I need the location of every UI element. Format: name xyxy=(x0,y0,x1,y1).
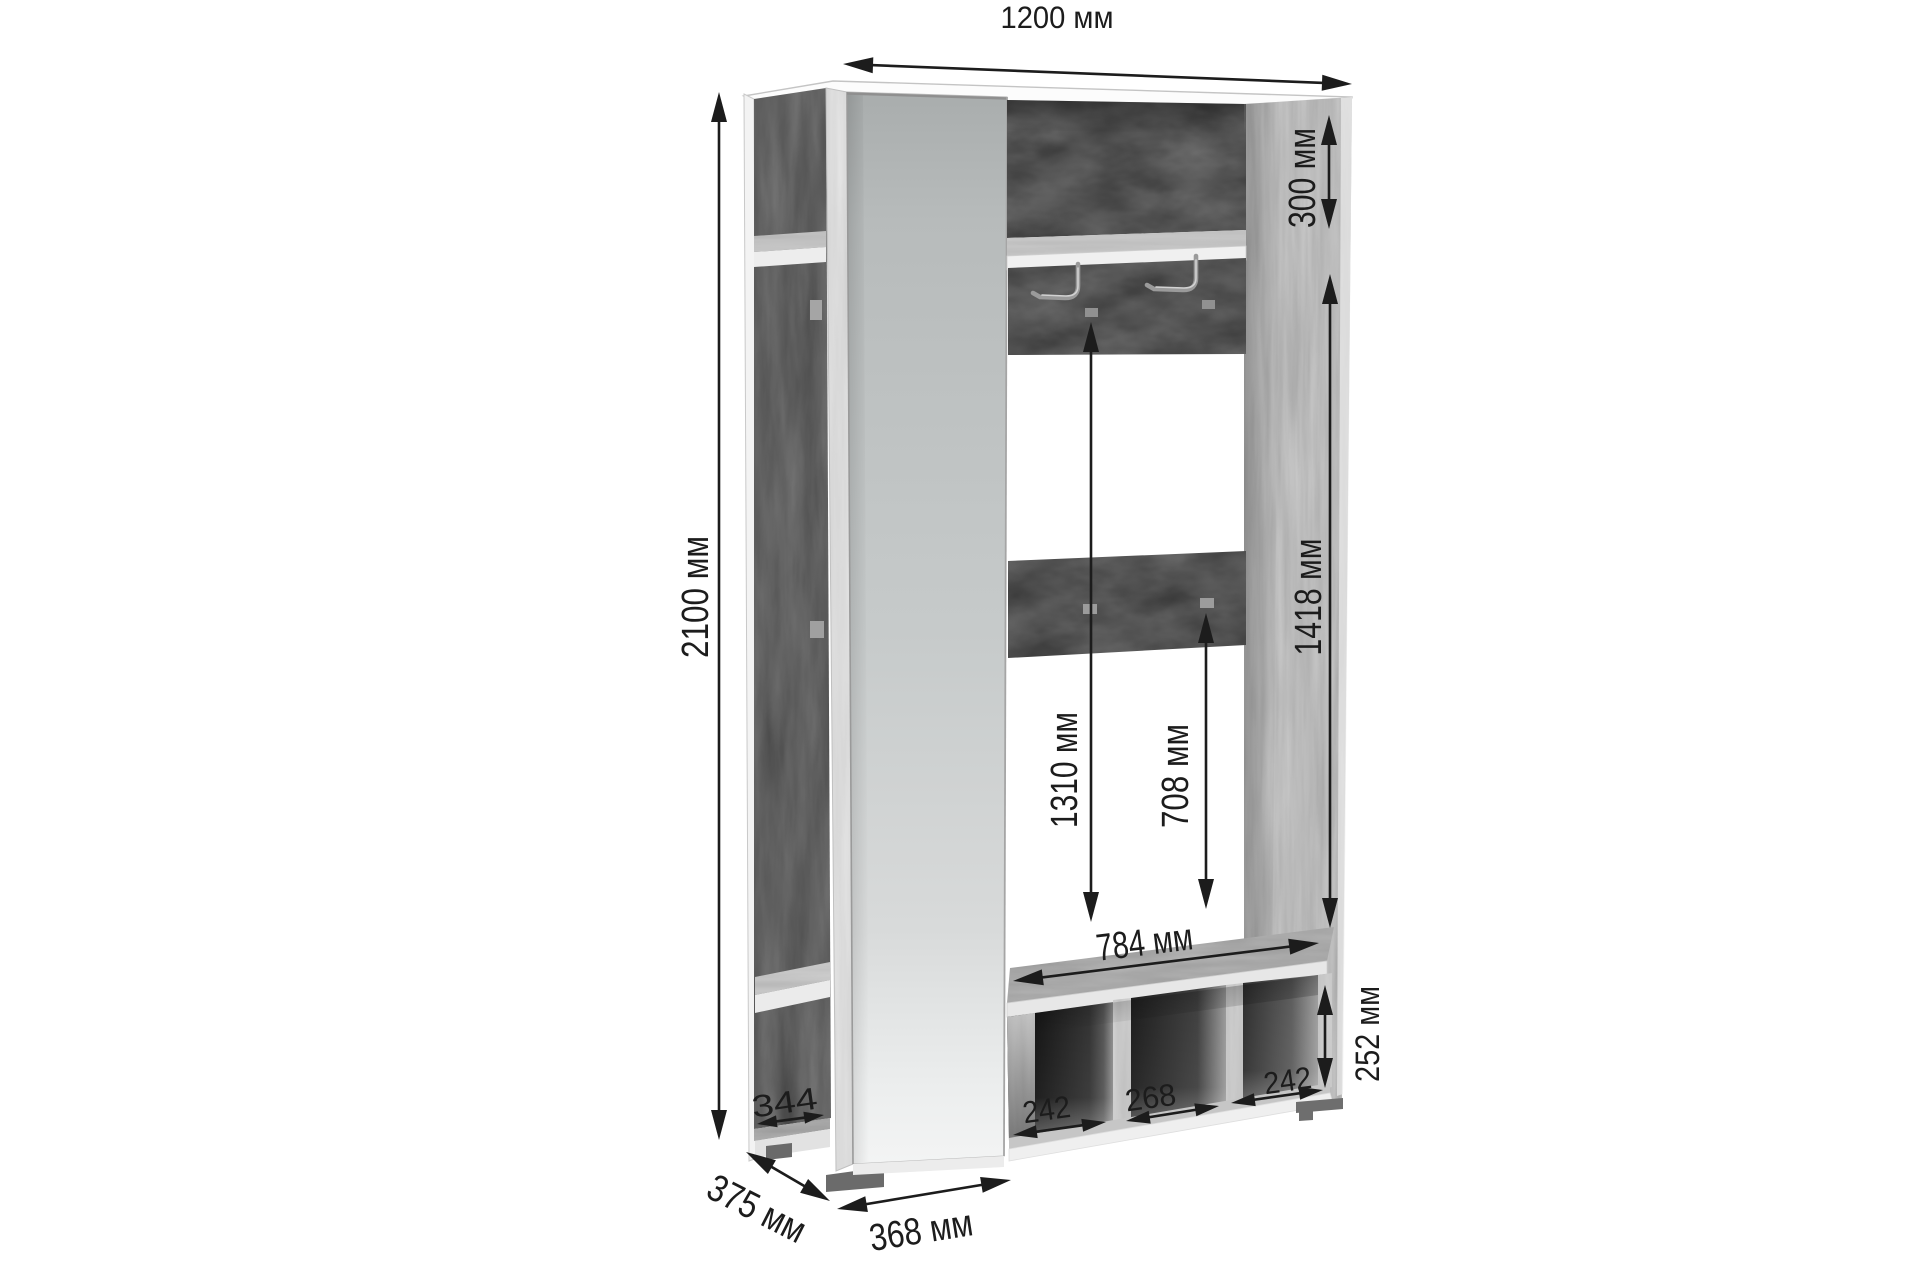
svg-text:268: 268 xyxy=(1123,1077,1178,1119)
svg-text:708 мм: 708 мм xyxy=(1155,724,1197,828)
svg-text:242: 242 xyxy=(1020,1089,1072,1130)
svg-text:252 мм: 252 мм xyxy=(1349,986,1387,1082)
svg-text:300 мм: 300 мм xyxy=(1282,128,1324,228)
svg-text:1418 мм: 1418 мм xyxy=(1288,539,1330,656)
svg-text:2100 мм: 2100 мм xyxy=(675,536,717,658)
svg-text:1310 мм: 1310 мм xyxy=(1044,712,1086,828)
svg-text:1200 мм: 1200 мм xyxy=(1001,0,1114,35)
svg-text:242: 242 xyxy=(1261,1060,1313,1101)
